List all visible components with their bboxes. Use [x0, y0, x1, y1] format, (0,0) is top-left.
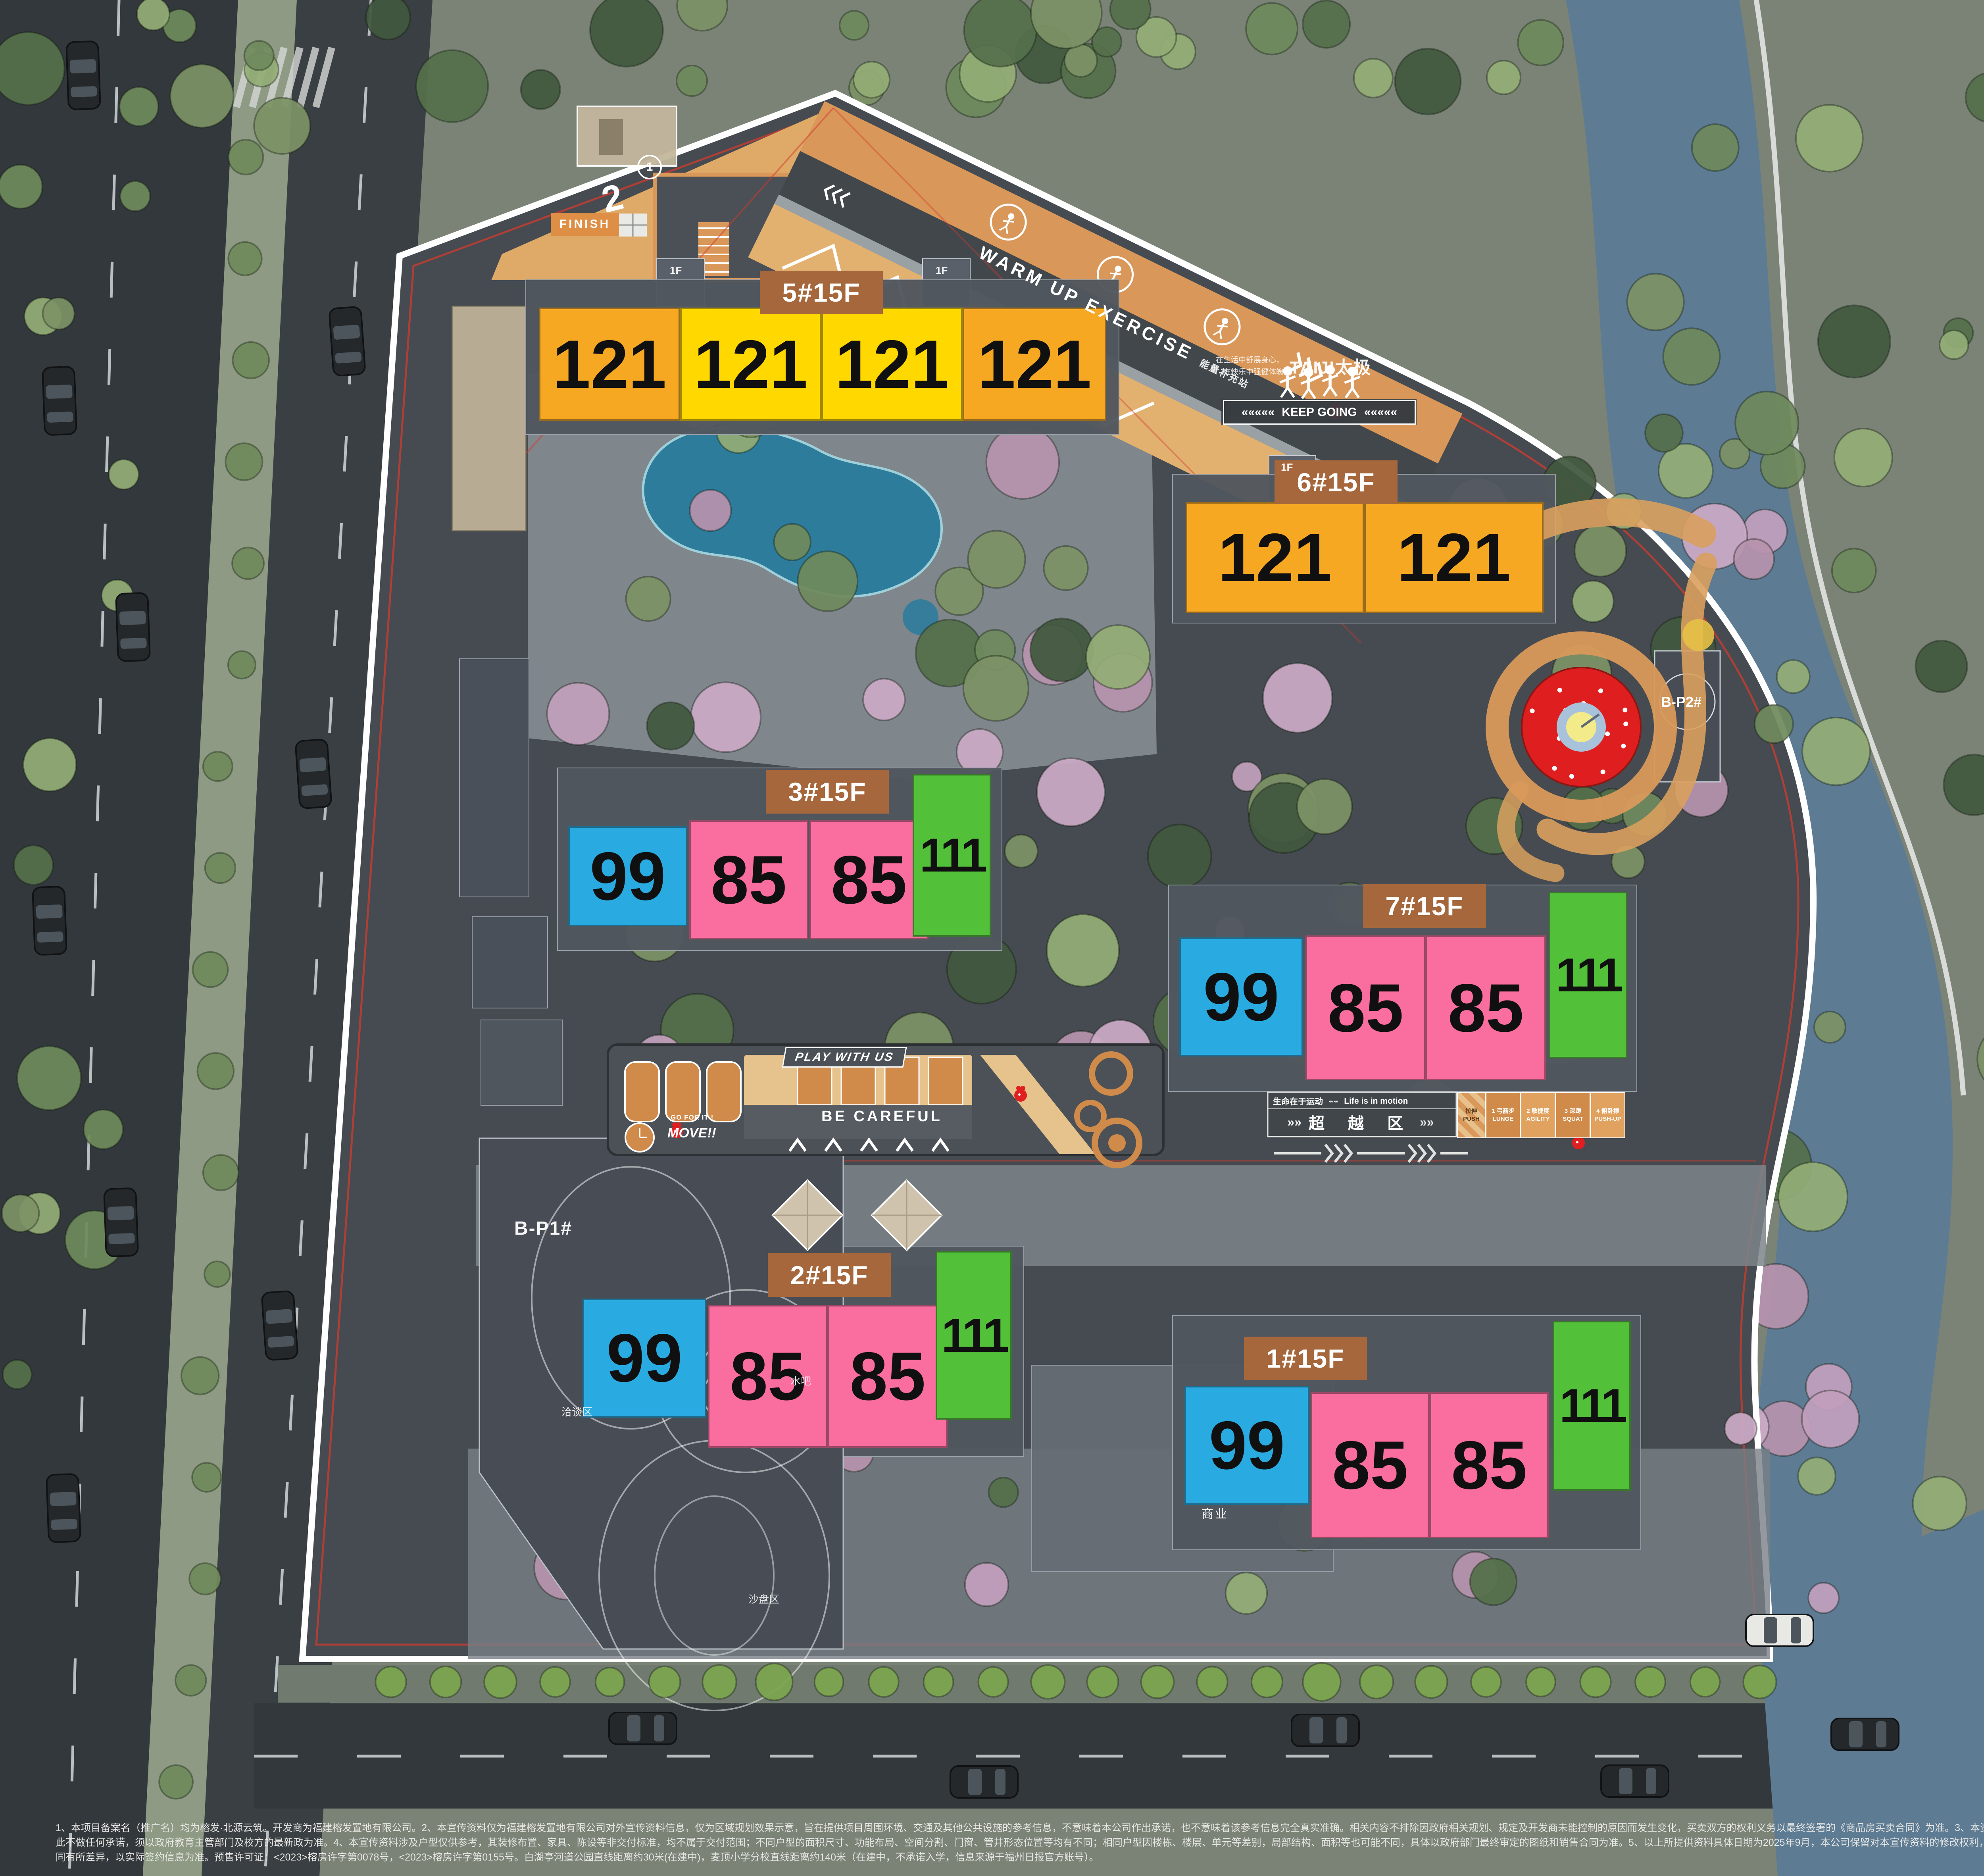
unit-block-6-1: 121: [1186, 502, 1364, 613]
parking-b-p1-label: B-P1#: [514, 1218, 572, 1239]
unit-block-5-4: 121: [963, 308, 1106, 421]
unit-area: 85: [711, 841, 786, 919]
unit-area: 111: [1559, 1378, 1624, 1433]
disclaimer-block: 1、本项目备案名（推广名）均为榕发·北源云筑。开发商为福建榕发置地有限公司。2、…: [56, 1821, 1984, 1865]
unit-block-1-1: 99: [1184, 1386, 1309, 1505]
station-squat: 3 深蹲 SQUAT: [1555, 1092, 1590, 1138]
unit-block-1-2: 85: [1311, 1392, 1430, 1538]
unit-block-3-3: 85: [809, 820, 929, 939]
unit-block-2-1: 99: [583, 1299, 706, 1418]
water-bar-label: 水吧: [790, 1373, 811, 1388]
keep-going-text: KEEP GOING: [1282, 406, 1357, 419]
unit-block-2-3: 85: [828, 1305, 948, 1448]
motto-en: Life is in motion: [1344, 1097, 1408, 1106]
motto-cn: 生命在于运动: [1273, 1095, 1323, 1107]
unit-area: 85: [831, 841, 907, 919]
unit-area: 85: [1451, 1426, 1527, 1505]
unit-area: 121: [1397, 518, 1511, 597]
parking-b-p2-label: B-P2#: [1661, 694, 1701, 710]
unit-area: 111: [942, 1308, 1006, 1363]
negotiation-area-label: 洽谈区: [561, 1404, 592, 1419]
unit-area: 85: [1332, 1426, 1408, 1505]
siteplan-decor-canvas: [0, 0, 1984, 1876]
unit-area: 121: [553, 325, 667, 404]
unit-block-5-3: 121: [821, 308, 963, 421]
floor-tag-1f: 1F: [670, 264, 682, 277]
fitness-stations: 拉伸 PUSH 1 弓箭步 LUNGE 2 敏捷度 AGILITY 3 深蹲 S…: [1457, 1092, 1625, 1138]
building-label-2: 2#15F: [768, 1253, 891, 1297]
surpass-zone-band: »» 超 越 区 »»: [1269, 1110, 1452, 1133]
building-label-6: 6#15F: [1275, 460, 1398, 504]
building-label-3: 3#15F: [766, 770, 889, 814]
taiji-zone-label: TAIJI太极: [1290, 353, 1371, 379]
unit-block-3-1: 99: [568, 826, 687, 926]
unit-area: 121: [835, 325, 949, 404]
unit-area: 111: [920, 828, 984, 883]
surpass-zone-text: 超 越 区: [1309, 1110, 1413, 1133]
unit-block-7-1: 99: [1179, 937, 1303, 1056]
chevron-right-icon: »»: [1287, 1115, 1302, 1129]
taiji-slogan: 在生活中舒展身心， 在快乐中强健体魄: [1194, 354, 1284, 379]
unit-block-1-4: 111: [1553, 1321, 1631, 1491]
chevron-right-icon: »»: [1420, 1115, 1434, 1129]
station-push: 拉伸 PUSH: [1457, 1092, 1486, 1138]
building-label-5: 5#15F: [760, 271, 883, 314]
station-lunge: 1 弓箭步 LUNGE: [1486, 1092, 1521, 1138]
play-with-us-label: PLAY WITH US: [782, 1047, 907, 1068]
floor-tag-1f: 1F: [1281, 461, 1293, 473]
chevron-left-icon: «««««: [1364, 406, 1397, 419]
unit-area: 85: [1328, 969, 1403, 1047]
station-agility: 2 敏捷度 AGILITY: [1521, 1092, 1555, 1138]
unit-block-7-4: 111: [1549, 892, 1627, 1058]
be-careful-label: BE CAREFUL: [821, 1108, 942, 1125]
unit-area: 99: [590, 837, 665, 916]
go-for-it-label: GO FOR IT !: [671, 1114, 713, 1122]
unit-area: 99: [606, 1319, 682, 1397]
unit-block-6-2: 121: [1364, 502, 1544, 613]
unit-area: 99: [1203, 958, 1279, 1036]
motto-strip: 生命在于运动 ⌁⌁ Life is in motion: [1273, 1095, 1408, 1107]
unit-block-3-4: 111: [913, 774, 991, 937]
disclaimer-line-1: 1、本项目备案名（推广名）均为榕发·北源云筑。开发商为福建榕发置地有限公司。2、…: [56, 1821, 1984, 1836]
taiji-slogan-line1: 在生活中舒展身心，: [1194, 354, 1284, 366]
unit-area: 121: [694, 325, 808, 404]
move-label: MOVE!!: [667, 1126, 716, 1141]
unit-block-3-2: 85: [689, 820, 808, 939]
unit-area: 111: [1556, 948, 1621, 1002]
unit-area: 121: [978, 325, 1092, 404]
siteplan-stage: 121 121 121 121 5#15F 121 121 6#15F 99 8…: [0, 0, 1984, 1876]
station-pushup: 4 俯卧撑 PUSH-UP: [1590, 1092, 1625, 1138]
unit-block-7-3: 85: [1426, 935, 1546, 1080]
commercial-label: 商业: [1202, 1504, 1228, 1522]
keep-going-band: ««««« KEEP GOING «««««: [1223, 400, 1416, 425]
unit-block-1-3: 85: [1430, 1392, 1549, 1538]
unit-block-5-2: 121: [680, 308, 821, 421]
unit-area: 85: [850, 1337, 925, 1416]
unit-block-2-4: 111: [936, 1251, 1012, 1420]
unit-area: 99: [1209, 1406, 1285, 1485]
building-label-1: 1#15F: [1244, 1337, 1367, 1380]
unit-block-5-1: 121: [539, 308, 680, 421]
taiji-slogan-line2: 在快乐中强健体魄: [1194, 366, 1284, 378]
course-marker-1: 1: [637, 155, 662, 179]
building-label-7: 7#15F: [1363, 884, 1486, 928]
unit-area: 121: [1218, 518, 1332, 597]
disclaimer-line-3: 同有所差异，以实际签约信息为准。预售许可证：<2023>榕房许字第0078号，<…: [56, 1850, 1984, 1865]
floor-tag-1f: 1F: [936, 264, 948, 277]
sand-table-label: 沙盘区: [748, 1591, 779, 1606]
unit-area: 85: [1448, 969, 1524, 1047]
unit-block-7-2: 85: [1305, 935, 1426, 1080]
chevron-left-icon: «««««: [1242, 406, 1275, 419]
heartbeat-icon: ⌁⌁: [1328, 1097, 1338, 1106]
disclaimer-line-2: 此不做任何承诺，须以政府教育主管部门及校方的最新政为准。4、本宣传资料涉及户型仅…: [56, 1836, 1984, 1850]
